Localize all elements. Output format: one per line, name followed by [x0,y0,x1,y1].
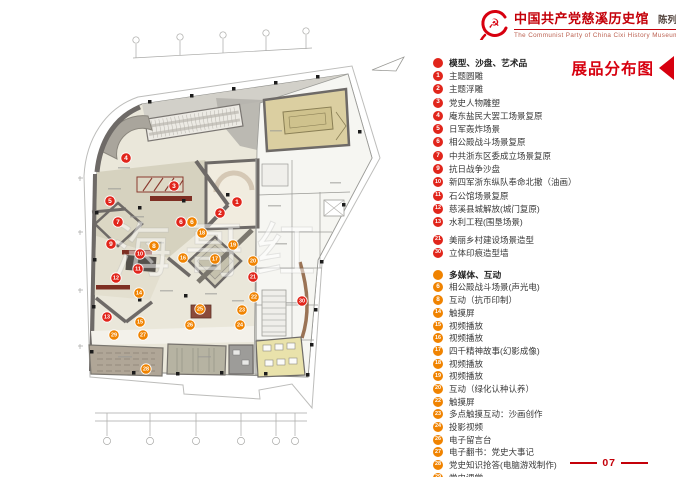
legend-dot-icon [433,270,443,280]
legend-item-number: 17 [433,346,443,356]
plan-marker-number: 21 [250,274,256,280]
legend-item: 13水利工程(围垦场景) [433,216,668,229]
legend-item-label: 党史知识抢答(电脑游戏制作) [449,459,557,471]
plan-subtitle: 陈列布展设计施工方案 [658,12,676,26]
plan-marker-number: 3 [172,183,176,190]
legend-item-label: 抗日战争沙盘 [449,163,500,175]
plan-marker-number: 2 [218,210,222,217]
plan-marker-number: 16 [180,255,186,261]
museum-title: 中国共产党慈溪历史馆 [514,8,649,27]
legend-item-label: 触摸屏 [449,396,475,408]
plan-marker-number: 10 [137,251,143,257]
legend-item-number: 3 [433,98,443,108]
legend-item: 22触摸屏 [433,395,668,408]
legend-item: 30立体印痕造型墙 [433,246,668,259]
legend-item-number: 2 [433,84,443,94]
plan-marker-number: 11 [135,266,141,272]
legend-item-number: 14 [433,308,443,318]
legend-item-number: 6 [433,137,443,147]
legend-item-number: 26 [433,435,443,445]
legend-item-number: 22 [433,397,443,407]
plan-marker-number: 12 [113,275,119,281]
legend-item-number: 8 [433,295,443,305]
legend-item: 26电子留言台 [433,433,668,446]
party-emblem-icon: ☭ [479,8,509,40]
legend-item: 18视频播放 [433,357,668,370]
legend-section-header: 模型、沙盘、艺术品 [433,56,668,69]
legend-item: 29党史课堂 [433,471,668,477]
plan-marker-number: 25 [197,306,203,312]
legend-item-label: 慈溪县城解放(城门复原) [449,203,540,215]
legend-item-number: 27 [433,447,443,457]
plan-marker-number: 14 [136,290,142,296]
plan-marker-number: 27 [140,332,146,338]
legend-item-number: 19 [433,371,443,381]
legend-item-label: 庵东盐民大罢工场景复原 [449,110,543,122]
legend-section-label: 多媒体、互动 [449,268,501,281]
legend-item-label: 立体印痕造型墙 [449,247,509,259]
legend-item: 5日军轰炸场景 [433,122,668,135]
legend-item: 7中共浙东区委成立场景复原 [433,149,668,162]
legend-item-label: 视频播放 [449,320,483,332]
plan-marker-number: 5 [108,198,112,205]
plan-marker-number: 30 [299,298,305,304]
legend-item-number: 24 [433,422,443,432]
legend-item-number: 18 [433,359,443,369]
legend-item-number: 13 [433,217,443,227]
plan-marker-number: 20 [250,258,256,264]
legend-item-number: 23 [433,409,443,419]
legend-item-number: 6 [433,282,443,292]
brand-header: ☭ 中国共产党慈溪历史馆 陈列布展设计施工方案 The Communist Pa… [479,8,676,40]
legend-item-number: 20 [433,384,443,394]
legend-item-label: 石公馆场景复原 [449,190,509,202]
legend-item-number: 16 [433,333,443,343]
legend-item-label: 中共浙东区委成立场景复原 [449,150,551,162]
legend-item-label: 党史课堂 [449,472,483,477]
plan-marker-number: 15 [137,319,143,325]
proposal-page: 海哥红 123456791011121321306814151617181920… [0,0,676,477]
plan-marker-number: 19 [230,242,236,248]
plan-marker-number: 17 [212,256,218,262]
legend-item: 16视频播放 [433,332,668,345]
plan-marker-number: 6 [190,219,194,226]
legend-item-number: 12 [433,204,443,214]
legend-item-label: 相公殿战斗场景(声光电) [449,281,540,293]
elevator [324,200,344,216]
plan-marker-number: 8 [152,243,156,250]
plan-marker-number: 29 [111,332,117,338]
legend-item-label: 电子留言台 [449,434,492,446]
legend: 模型、沙盘、艺术品1主题圆雕2主题浮雕3党史人物雕塑4庵东盐民大罢工场景复原5日… [433,56,668,477]
legend-item: 6相公殿战斗场景(声光电) [433,281,668,294]
legend-item: 20互动（绿化认种认养） [433,383,668,396]
legend-item-label: 视频播放 [449,358,483,370]
legend-item: 6相公殿战斗场景复原 [433,136,668,149]
legend-item-number: 28 [433,460,443,470]
legend-section-label: 模型、沙盘、艺术品 [449,56,527,69]
legend-section-header: 多媒体、互动 [433,268,668,281]
legend-item-label: 视频播放 [449,370,483,382]
plan-marker-number: 9 [109,241,113,248]
legend-item: 3党史人物雕塑 [433,96,668,109]
plan-marker-number: 22 [251,294,257,300]
plan-marker-number: 6 [179,219,183,226]
legend-item: 9抗日战争沙盘 [433,162,668,175]
legend-item-label: 多点触摸互动：沙画创作 [449,408,543,420]
plan-marker-number: 24 [237,322,243,328]
legend-item-number: 1 [433,71,443,81]
legend-item-label: 水利工程(围垦场景) [449,216,523,228]
legend-item-label: 主题圆雕 [449,70,483,82]
conference-room [264,89,349,151]
legend-item-label: 视频播放 [449,332,483,344]
legend-item: 10新四军浙东纵队奉命北撤（油画） [433,176,668,189]
legend-item-number: 10 [433,177,443,187]
legend-item-label: 电子翻书：党史大事记 [449,446,534,458]
legend-item-number: 7 [433,151,443,161]
legend-item: 23多点触摸互动：沙画创作 [433,408,668,421]
legend-item-number: 11 [433,191,443,201]
legend-item: 12慈溪县城解放(城门复原) [433,202,668,215]
legend-item: 4庵东盐民大罢工场景复原 [433,109,668,122]
legend-item-label: 主题浮雕 [449,83,483,95]
legend-item-number: 21 [433,235,443,245]
page-number-rule [570,462,597,464]
legend-item-number: 29 [433,473,443,477]
plan-marker-number: 4 [124,155,128,162]
legend-dot-icon [433,58,443,68]
legend-item: 15视频播放 [433,319,668,332]
page-number: 07 [570,457,648,469]
legend-item-number: 4 [433,111,443,121]
legend-item-label: 触摸屏 [449,307,475,319]
legend-item-label: 四千精神故事(幻影成像) [449,345,540,357]
legend-item-label: 互动（抗币印制） [449,294,517,306]
legend-item: 1主题圆雕 [433,69,668,82]
legend-item: 19视频播放 [433,370,668,383]
svg-text:☭: ☭ [488,16,500,31]
north-arrow-icon [372,57,404,71]
legend-item-label: 美丽乡村建设场景造型 [449,234,534,246]
museum-title-en: The Communist Party of China Cixi Histor… [514,32,676,39]
legend-section: 多媒体、互动6相公殿战斗场景(声光电)8互动（抗币印制）14触摸屏15视频播放1… [433,268,668,477]
plan-marker-number: 1 [235,199,239,206]
legend-item-label: 投影视频 [449,421,483,433]
legend-item-label: 互动（绿化认种认养） [449,383,534,395]
page-number-value: 07 [602,457,616,469]
legend-item: 2主题浮雕 [433,83,668,96]
plan-marker-number: 26 [187,322,193,328]
page-number-rule [621,462,648,464]
legend-item-number: 5 [433,124,443,134]
legend-section: 模型、沙盘、艺术品1主题圆雕2主题浮雕3党史人物雕塑4庵东盐民大罢工场景复原5日… [433,56,668,259]
plan-marker-number: 13 [104,314,110,320]
legend-item-number: 9 [433,164,443,174]
legend-item: 8互动（抗币印制） [433,294,668,307]
plan-marker-number: 18 [199,230,205,236]
legend-item: 14触摸屏 [433,307,668,320]
plan-marker-number: 28 [143,366,149,372]
legend-item-number: 30 [433,248,443,258]
legend-item: 21美丽乡村建设场景造型 [433,233,668,246]
legend-item-number: 15 [433,321,443,331]
legend-item: 24投影视频 [433,421,668,434]
legend-item: 17四千精神故事(幻影成像) [433,345,668,358]
plan-marker-number: 7 [116,219,120,226]
legend-item-label: 相公殿战斗场景复原 [449,136,526,148]
legend-item-label: 日军轰炸场景 [449,123,500,135]
legend-item-label: 新四军浙东纵队奉命北撤（油画） [449,176,577,188]
legend-item-label: 党史人物雕塑 [449,97,500,109]
legend-item: 11石公馆场景复原 [433,189,668,202]
plan-marker-number: 23 [239,307,245,313]
